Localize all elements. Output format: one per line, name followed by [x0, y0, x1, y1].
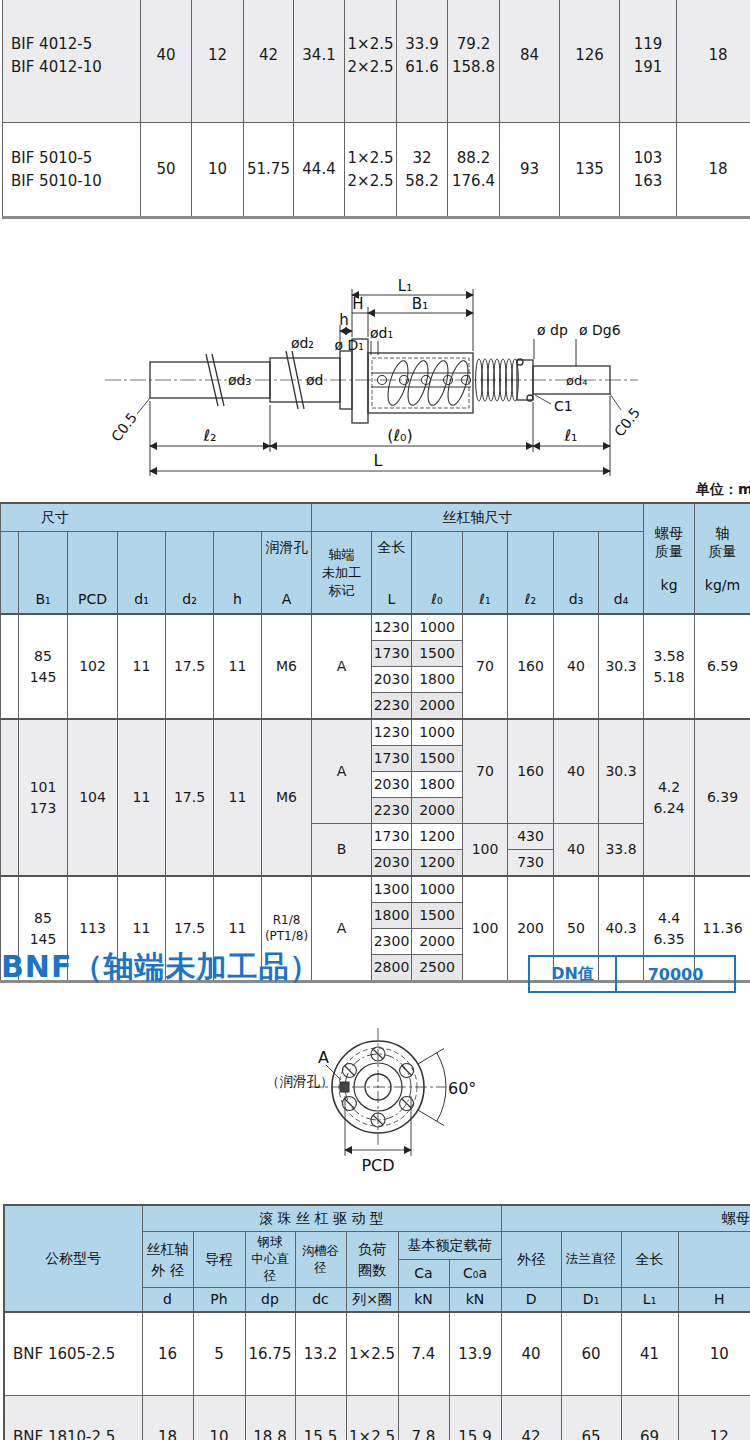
header-PCD: PCD	[68, 532, 118, 615]
header-sym-d: d	[142, 1288, 193, 1313]
header-d2: d₂	[166, 532, 214, 615]
dim-label-d2: ød₂	[291, 335, 314, 351]
cell-ca: 33.9 61.6	[397, 0, 448, 123]
cell-d1: 11	[118, 614, 166, 719]
angle-label: 60°	[448, 1079, 476, 1098]
dim-label-H: H	[352, 295, 363, 313]
nut-ball-circuits	[371, 359, 472, 408]
cell-l0: 2000	[412, 798, 463, 824]
cell-l0: 1500	[412, 746, 463, 772]
header-l2: ℓ₂	[508, 532, 554, 615]
header-spacer	[1, 532, 19, 615]
chamfer-label-left: C0.5	[108, 409, 140, 444]
cell-ph: 12	[192, 0, 244, 123]
cell-circuits: 1×2.5 2×2.5	[345, 123, 397, 218]
cell-dc: 13.2	[295, 1312, 346, 1396]
header-flange-dia: 法兰直径	[561, 1232, 621, 1288]
cell-lube: M6	[262, 719, 312, 876]
cell-kgm: 6.59	[695, 614, 750, 719]
cell-D: 40	[501, 1312, 561, 1396]
cell-d3: 40	[554, 614, 599, 719]
cell-ca: 32 58.2	[397, 123, 448, 218]
cell-model: BIF 5010-5 BIF 5010-10	[3, 123, 141, 218]
header-row-groups: 尺寸 丝杠轴尺寸 螺母 质量kg 轴 质量kg/m	[1, 503, 750, 532]
dn-label: DN值	[530, 957, 617, 991]
dim-label-c1: C1	[554, 398, 573, 414]
cell-model: BIF 4012-5 BIF 4012-10	[3, 0, 141, 123]
dim-label-l1: ℓ₁	[563, 426, 577, 445]
cell-l1: 70	[463, 719, 508, 824]
cell-L: 1230	[372, 614, 412, 641]
header-length: 全长L	[372, 532, 412, 615]
table-row: 85 145 102 11 17.5 11 M6 A 1230 1000 70 …	[1, 614, 750, 641]
cell-dp: 18.8	[245, 1396, 295, 1440]
cell-H: 18	[677, 123, 750, 218]
cell-D1: 60	[561, 1312, 621, 1396]
dn-value-box: DN值 70000	[528, 955, 736, 993]
cell-l0: 1000	[412, 719, 463, 746]
cell-B1: 85 145	[19, 614, 68, 719]
cell-kgm: 6.39	[695, 719, 750, 876]
cell-D: 42	[501, 1396, 561, 1440]
length-symbol: L	[373, 591, 410, 607]
dimension-table: 尺寸 丝杠轴尺寸 螺母 质量kg 轴 质量kg/m B₁ PCD d₁ d₂ h…	[0, 502, 750, 983]
flange-front-diagram: A （润滑孔） 60° PCD	[240, 1010, 540, 1180]
lube-note-label: （润滑孔）	[266, 1073, 334, 1089]
header-nut-mass: 螺母 质量kg	[644, 503, 695, 614]
header-sym-cir: 列×圈	[346, 1288, 398, 1313]
cell-PCD: 102	[68, 614, 118, 719]
table-row: BNF 1810-2.5 18 10 18.8 15.5 1×2.5 7.8 1…	[4, 1396, 750, 1440]
header-shaft-group: 丝杠轴尺寸	[312, 503, 644, 532]
lube-a-label: A	[318, 1048, 329, 1067]
bnf-spec-table: 公称型号 滚 珠 丝 杠 驱 动 型 螺母 丝杠轴 外 径 导程 钢球 中心直径…	[3, 1204, 750, 1440]
cell-l0: 2000	[412, 929, 463, 955]
dim-label-d1: ød₁	[370, 325, 393, 341]
cell-L: 1800	[372, 903, 412, 929]
cell-L: 2030	[372, 667, 412, 693]
header-row-groups: 公称型号 滚 珠 丝 杠 驱 动 型 螺母	[4, 1205, 750, 1232]
ballscrew-side-diagram: L₁ H B₁ h ød₁ ød₂ ød₃ ød ø D₁ ø dp ø Dg6…	[0, 255, 750, 500]
cell-spacer	[1, 614, 19, 719]
pcd-label: PCD	[361, 1156, 394, 1175]
cell-dp: 16.75	[245, 1312, 295, 1396]
chamfer-label-right: C0.5	[611, 404, 643, 439]
header-od: 外径	[501, 1232, 561, 1288]
header-l1: ℓ₁	[463, 532, 508, 615]
cell-model: BNF 1810-2.5	[4, 1396, 142, 1440]
flange-outline	[310, 1028, 446, 1156]
cell-ph: 10	[192, 123, 244, 218]
header-model: 公称型号	[4, 1205, 142, 1312]
cell-d2: 17.5	[166, 719, 214, 876]
dim-label-L1: L₁	[398, 277, 412, 295]
header-sym-kn1: kN	[398, 1288, 449, 1313]
table-row: BNF 1605-2.5 16 5 16.75 13.2 1×2.5 7.4 1…	[4, 1312, 750, 1396]
dim-label-L: L	[374, 451, 383, 470]
cell-d: 40	[141, 0, 192, 123]
cell-H: 12	[678, 1396, 750, 1440]
header-drive-group: 滚 珠 丝 杠 驱 动 型	[142, 1205, 501, 1232]
header-circuits: 负荷 圈数	[346, 1232, 398, 1288]
flange-labels: A （润滑孔） 60° PCD	[266, 1048, 476, 1175]
cell-dc: 34.1	[294, 0, 345, 123]
cell-l0: 1800	[412, 772, 463, 798]
cell-d3: 40	[554, 824, 599, 877]
header-sym-dp: dp	[245, 1288, 295, 1313]
table-row: BIF 4012-5 BIF 4012-10 40 12 42 34.1 1×2…	[3, 0, 750, 123]
cell-L1: 103 163	[620, 123, 677, 218]
cell-B1: 101 173	[19, 719, 68, 876]
header-c0a: C₀a	[449, 1260, 501, 1288]
cell-l0: 1800	[412, 667, 463, 693]
cell-d1: 11	[118, 719, 166, 876]
cell-dc: 15.5	[295, 1396, 346, 1440]
dim-label-d3: ød₃	[228, 372, 251, 388]
cell-L: 1730	[372, 746, 412, 772]
header-h: h	[214, 532, 262, 615]
cell-dc: 44.4	[294, 123, 345, 218]
header-d1: d₁	[118, 532, 166, 615]
lube-hole	[340, 1082, 349, 1092]
header-shaft-od: 丝杠轴 外 径	[142, 1232, 193, 1288]
cell-L: 2230	[372, 798, 412, 824]
cell-h: 11	[214, 719, 262, 876]
nut-mass-unit: kg	[645, 577, 693, 593]
nut-mass-label: 螺母 质量	[645, 525, 693, 561]
header-l0: ℓ₀	[412, 532, 463, 615]
dn-value: 70000	[617, 957, 734, 991]
header-length: 全长	[621, 1232, 678, 1288]
cell-mark: A	[312, 614, 372, 719]
header-sym-dc: dc	[295, 1288, 346, 1313]
cell-d4: 33.8	[599, 824, 644, 877]
cell-l0: 1200	[412, 850, 463, 877]
cell-lube: M6	[262, 614, 312, 719]
cell-D1: 135	[560, 123, 620, 218]
cell-ph: 10	[193, 1396, 245, 1440]
cell-d: 16	[142, 1312, 193, 1396]
cell-ca: 7.4	[398, 1312, 449, 1396]
dim-label-d: ød	[306, 372, 323, 388]
shaft-mass-unit: kg/m	[696, 577, 749, 593]
cell-H: 18	[677, 0, 750, 123]
table-row: 101 173 104 11 17.5 11 M6 A 1230 1000 70…	[1, 719, 750, 746]
cell-l2: 160	[508, 719, 554, 824]
header-lube: 润滑孔A	[262, 532, 312, 615]
cell-L: 2030	[372, 850, 412, 877]
cell-h: 11	[214, 614, 262, 719]
cell-spacer	[1, 719, 19, 876]
cell-l2: 730	[508, 850, 554, 877]
header-row-symbols: B₁ PCD d₁ d₂ h 润滑孔A 轴端 未加工 标记 全长L ℓ₀ ℓ₁ …	[1, 532, 750, 615]
cell-L1: 41	[621, 1312, 678, 1396]
header-nut-group: 螺母	[501, 1205, 750, 1232]
dim-label-h: h	[339, 311, 349, 329]
cell-l0: 1000	[412, 614, 463, 641]
unit-note: 单位：mm	[696, 481, 750, 499]
cell-c0a: 79.2 158.8	[448, 0, 500, 123]
cell-d2: 17.5	[166, 614, 214, 719]
cell-l2: 430	[508, 824, 554, 850]
cell-l0: 2000	[412, 693, 463, 720]
cell-L: 2030	[372, 772, 412, 798]
header-end-mark: 轴端 未加工 标记	[312, 532, 372, 615]
cell-H: 10	[678, 1312, 750, 1396]
cell-l1: 100	[463, 876, 508, 982]
cell-kg: 3.58 5.18	[644, 614, 695, 719]
dim-label-B1: B₁	[412, 295, 428, 313]
table-row: 85 145 113 11 17.5 11 R1/8 (PT1/8) A 130…	[1, 876, 750, 903]
cell-D1: 126	[560, 0, 620, 123]
dim-label-D1: ø D₁	[335, 337, 364, 353]
header-ca: Ca	[398, 1260, 449, 1288]
screw-thread	[476, 359, 519, 401]
dim-label-d4: ød₄	[566, 373, 587, 388]
table-row: BIF 5010-5 BIF 5010-10 50 10 51.75 44.4 …	[3, 123, 750, 218]
cell-d3: 40	[554, 719, 599, 824]
cell-L: 2230	[372, 693, 412, 720]
lube-symbol: A	[263, 591, 310, 607]
cell-l0: 1500	[412, 641, 463, 667]
cell-D1: 65	[561, 1396, 621, 1440]
cell-l1: 70	[463, 614, 508, 719]
lube-label: 润滑孔	[263, 539, 310, 557]
header-sym-H: H	[678, 1288, 750, 1313]
cell-c0a: 88.2 176.4	[448, 123, 500, 218]
cell-circuits: 1×2.5 2×2.5	[345, 0, 397, 123]
cell-l0: 2500	[412, 955, 463, 982]
cell-L: 2800	[372, 955, 412, 982]
header-spacer	[678, 1232, 750, 1288]
header-root-dia: 沟槽谷径	[295, 1232, 346, 1288]
header-shaft-mass: 轴 质量kg/m	[695, 503, 750, 614]
header-ball-dia: 钢球 中心直径	[245, 1232, 295, 1288]
cell-L1: 69	[621, 1396, 678, 1440]
cell-mark: A	[312, 719, 372, 824]
cell-d: 18	[142, 1396, 193, 1440]
header-sym-L1: L₁	[621, 1288, 678, 1313]
cell-model: BNF 1605-2.5	[4, 1312, 142, 1396]
header-B1: B₁	[19, 532, 68, 615]
header-sym-kn2: kN	[449, 1288, 501, 1313]
cell-c0a: 15.9	[449, 1396, 501, 1440]
dim-label-dg6: ø Dg6	[579, 322, 621, 338]
cell-L: 1230	[372, 719, 412, 746]
cell-D: 93	[500, 123, 560, 218]
header-lead: 导程	[193, 1232, 245, 1288]
header-d4: d₄	[599, 532, 644, 615]
cell-d4: 30.3	[599, 614, 644, 719]
cell-mark: A	[312, 876, 372, 982]
cell-dp: 42	[244, 0, 294, 123]
cell-kg: 4.2 6.24	[644, 719, 695, 876]
shaft-mass-label: 轴 质量	[696, 525, 749, 561]
cell-PCD: 104	[68, 719, 118, 876]
cell-D: 84	[500, 0, 560, 123]
length-label: 全长	[373, 539, 410, 557]
cell-L1: 119 191	[620, 0, 677, 123]
header-sym-D: D	[501, 1288, 561, 1313]
cell-L: 2300	[372, 929, 412, 955]
cell-ph: 5	[193, 1312, 245, 1396]
cell-L: 1730	[372, 641, 412, 667]
cell-ca: 7.8	[398, 1396, 449, 1440]
cell-l1: 100	[463, 824, 508, 877]
cell-L: 1730	[372, 824, 412, 850]
catalog-page: { "unit_note": "单位：mm", "section": { "ti…	[0, 0, 750, 1440]
cell-d: 50	[141, 123, 192, 218]
header-load: 基本额定载荷	[398, 1232, 501, 1260]
cell-dp: 51.75	[244, 123, 294, 218]
cell-l0: 1200	[412, 824, 463, 850]
cell-mark: B	[312, 824, 372, 877]
cell-cir: 1×2.5	[346, 1312, 398, 1396]
header-sym-ph: Ph	[193, 1288, 245, 1313]
bif-spec-table: BIF 4012-5 BIF 4012-10 40 12 42 34.1 1×2…	[2, 0, 750, 219]
cell-d4: 30.3	[599, 719, 644, 824]
dim-label-dp: ø dp	[537, 322, 568, 338]
header-size-group: 尺寸	[1, 503, 312, 532]
dim-label-l2: ℓ₂	[202, 426, 216, 445]
header-d3: d₃	[554, 532, 599, 615]
section-heading: BNF（轴端未加工品）	[1, 947, 320, 988]
cell-c0a: 13.9	[449, 1312, 501, 1396]
header-sym-D1: D₁	[561, 1288, 621, 1313]
dim-label-l0: (ℓ₀)	[387, 426, 413, 445]
cell-l0: 1000	[412, 876, 463, 903]
cell-cir: 1×2.5	[346, 1396, 398, 1440]
cell-L: 1300	[372, 876, 412, 903]
cell-l2: 160	[508, 614, 554, 719]
cell-l0: 1500	[412, 903, 463, 929]
